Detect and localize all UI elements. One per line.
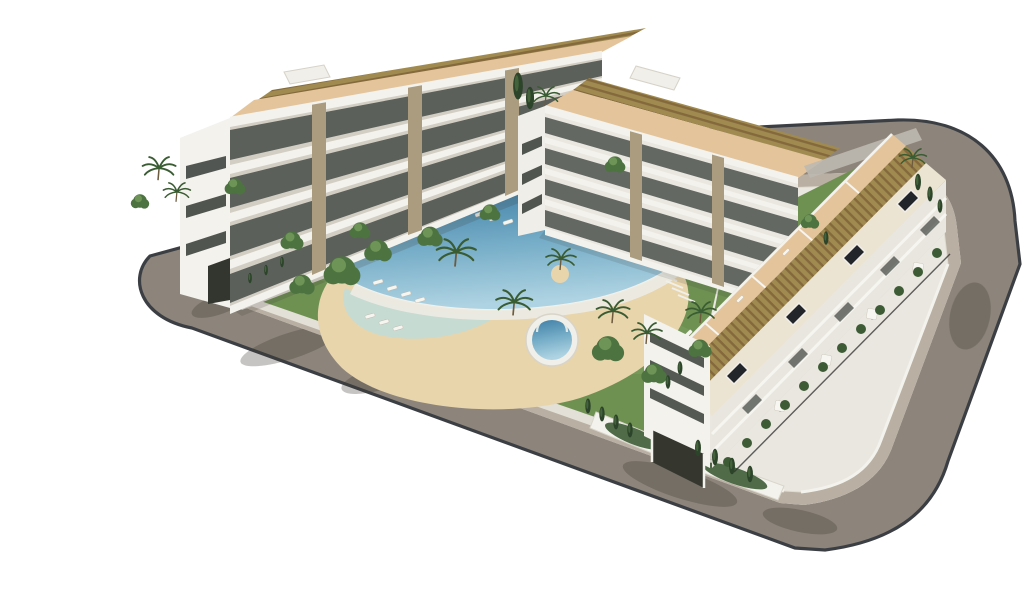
stair-bulkhead	[630, 66, 680, 90]
stair-bulkhead	[284, 65, 330, 84]
aerial-render: Aerial 3D architectural render of a new-…	[40, 16, 1024, 592]
kids-round-pool	[526, 314, 578, 366]
garage-door	[208, 258, 230, 304]
render-canvas: Aerial 3D architectural render of a new-…	[40, 16, 1024, 592]
